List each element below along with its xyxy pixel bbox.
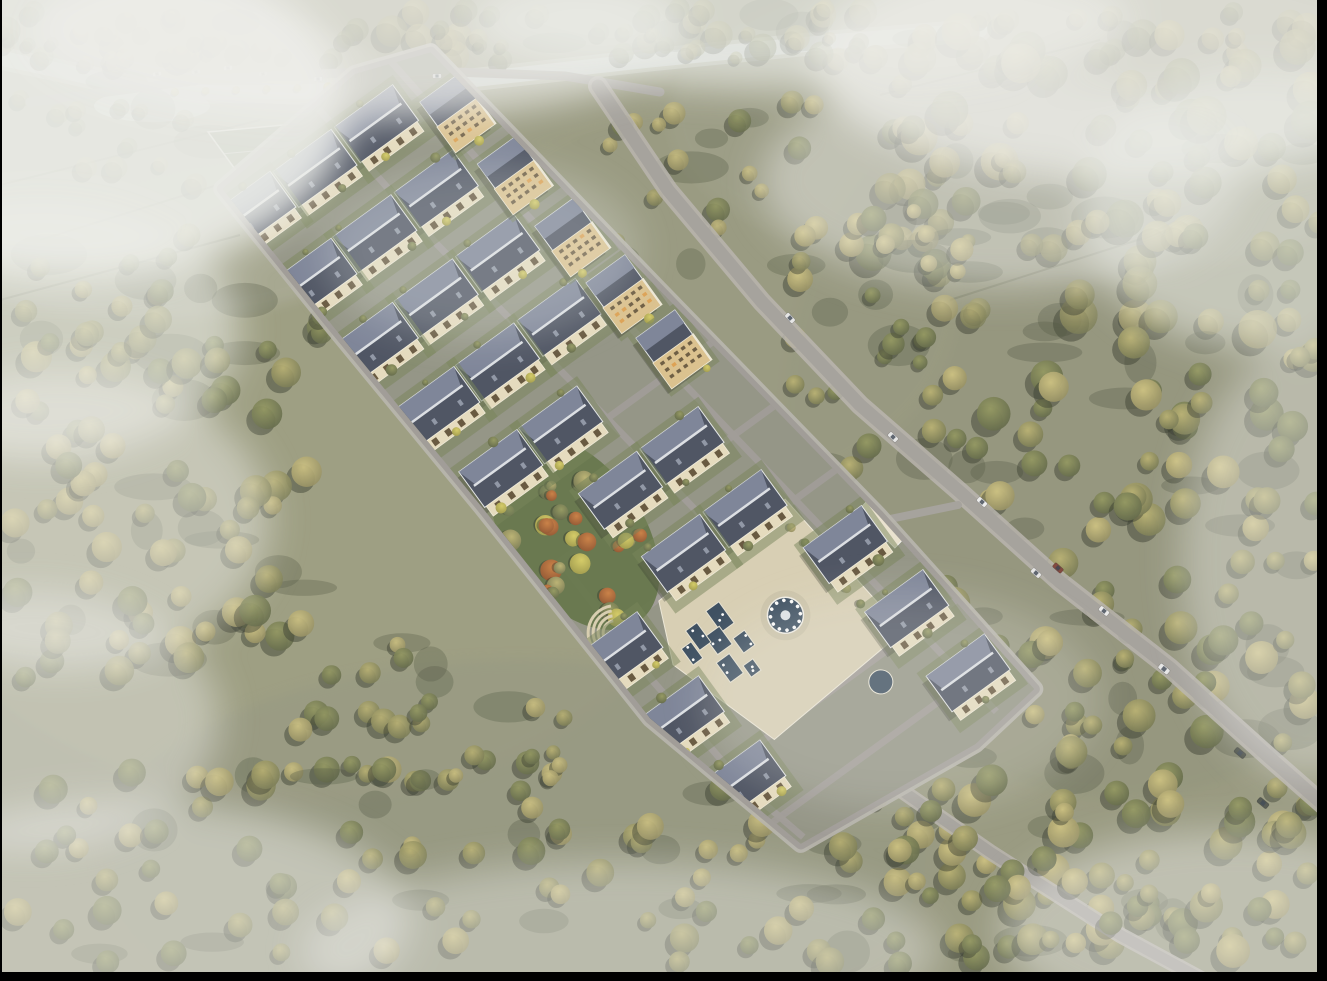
aerial-render-stage [0,0,1327,981]
fog-patch [760,70,1240,290]
left-border [0,0,2,981]
aerial-render [0,0,1327,981]
fog-patch [320,160,640,340]
right-border [1317,0,1327,981]
fog-patch [700,590,1100,810]
bottom-border [0,972,1327,981]
